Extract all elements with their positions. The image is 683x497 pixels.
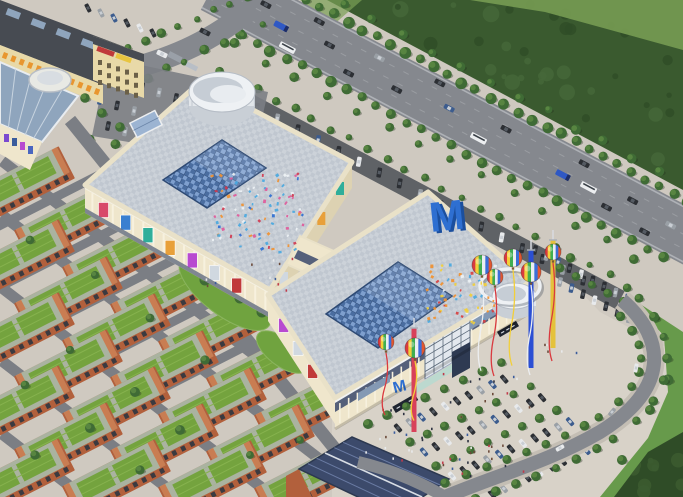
person (488, 445, 490, 447)
tree-highlight (429, 62, 435, 68)
confetti-piece (239, 190, 243, 192)
tree-highlight (26, 236, 31, 241)
tree-highlight (542, 441, 547, 446)
tree-highlight (499, 99, 505, 105)
person (467, 461, 469, 463)
person (492, 393, 494, 395)
person (461, 416, 463, 418)
tree-highlight (441, 422, 446, 427)
tree-highlight (532, 233, 536, 237)
person (443, 464, 445, 466)
tree-highlight (628, 236, 633, 241)
tree-highlight (630, 255, 635, 260)
tree-highlight (627, 168, 632, 173)
confetti-piece (449, 263, 452, 266)
tree-highlight (486, 94, 492, 100)
tree-highlight (572, 455, 577, 460)
tree-highlight (545, 106, 549, 110)
tree-highlight (86, 424, 91, 429)
tree-highlight (519, 423, 524, 428)
person (442, 462, 444, 464)
tree-highlight (386, 40, 392, 46)
tree-highlight (344, 18, 350, 24)
tree-highlight (655, 167, 660, 172)
person (408, 449, 410, 451)
confetti-piece (494, 265, 497, 268)
tree-highlight (470, 85, 475, 90)
tree-highlight (262, 60, 266, 64)
tree-highlight (429, 50, 434, 55)
tree-highlight (307, 115, 311, 119)
confetti-piece (451, 279, 454, 282)
person (277, 283, 279, 285)
confetti-piece (230, 177, 233, 179)
tree-highlight (572, 222, 577, 227)
tree-highlight (432, 462, 437, 467)
person (411, 450, 413, 452)
tree-highlight (514, 109, 520, 115)
tree-highlight (443, 70, 448, 75)
person (488, 450, 490, 452)
person (523, 470, 525, 472)
tree-highlight (457, 63, 462, 68)
tree-highlight (580, 422, 585, 427)
tree-highlight (556, 264, 561, 269)
person (422, 439, 424, 441)
person (576, 352, 578, 354)
confetti-piece (262, 174, 264, 177)
facade-poster (121, 215, 131, 230)
tree-highlight (511, 190, 515, 194)
tree-highlight (175, 24, 179, 28)
tree-highlight (163, 64, 168, 69)
person (470, 380, 472, 382)
tree-highlight (501, 431, 506, 436)
tree-highlight (587, 262, 590, 265)
person (392, 457, 394, 459)
person (206, 278, 208, 280)
confetti-piece (430, 265, 433, 269)
tree-highlight (483, 463, 488, 468)
tree-highlight (536, 414, 541, 419)
person (406, 434, 408, 436)
tree-highlight (415, 141, 419, 145)
confetti-piece (454, 283, 456, 286)
tree-highlight (146, 314, 151, 319)
confetti-piece (252, 203, 254, 205)
tree-highlight (635, 294, 640, 299)
tree-highlight (670, 190, 676, 196)
tree-highlight (553, 406, 558, 411)
tree-highlight (327, 127, 331, 131)
tree-highlight (593, 445, 598, 450)
facade-poster (187, 253, 197, 268)
person (450, 401, 452, 403)
tree-highlight (478, 158, 484, 164)
person (207, 285, 209, 287)
confetti-piece (258, 233, 260, 236)
tree-highlight (484, 439, 488, 443)
tree-highlight (201, 356, 206, 361)
confetti-piece (487, 296, 489, 299)
tree-highlight (650, 313, 655, 318)
tree-highlight (492, 166, 497, 171)
tree-highlight (341, 1, 346, 6)
person (473, 451, 475, 453)
tree-highlight (597, 221, 602, 226)
tree-highlight (660, 333, 664, 337)
tree-highlight (532, 472, 537, 477)
person (286, 289, 288, 291)
tree-highlight (487, 79, 492, 84)
roof-logo-m: M (427, 191, 467, 241)
tree-highlight (566, 254, 571, 259)
tree-highlight (290, 73, 295, 78)
confetti-piece (455, 298, 457, 300)
confetti-piece (477, 307, 479, 309)
tree-highlight (475, 407, 480, 412)
tree-highlight (539, 208, 543, 212)
person (507, 392, 509, 394)
tree-highlight (623, 284, 628, 289)
tree-highlight (401, 166, 405, 170)
tree-highlight (240, 32, 244, 36)
tree-highlight (386, 124, 391, 129)
balloon-basket (494, 286, 496, 288)
person (273, 259, 275, 261)
person (385, 447, 387, 449)
tree-highlight (142, 37, 147, 42)
tree-highlight (346, 135, 350, 139)
person (459, 458, 461, 460)
tree-highlight (588, 281, 592, 285)
person (215, 282, 217, 284)
tree-highlight (358, 93, 363, 98)
tree-highlight (374, 32, 379, 37)
tree-highlight (493, 399, 498, 404)
confetti-piece (287, 244, 289, 247)
balloon-basket (385, 351, 387, 353)
person (431, 428, 433, 430)
tree-highlight (372, 102, 377, 107)
person (452, 468, 454, 470)
tree-highlight (498, 359, 503, 364)
person (279, 263, 281, 265)
tree-highlight (649, 397, 654, 402)
person (484, 400, 486, 402)
confetti-piece (469, 275, 471, 278)
tree-highlight (660, 376, 665, 381)
tree-highlight (66, 346, 71, 351)
balloon-basket (481, 276, 483, 278)
person (561, 350, 563, 352)
tree-highlight (92, 272, 96, 276)
tree-highlight (515, 94, 520, 99)
tree-highlight (403, 120, 408, 125)
tree-highlight (417, 55, 422, 60)
tree-highlight (384, 156, 389, 161)
tree-highlight (478, 206, 482, 210)
tree-highlight (447, 156, 451, 160)
tree-highlight (582, 213, 588, 219)
tree-highlight (247, 452, 251, 456)
balloon-basket (414, 359, 416, 361)
tree-highlight (523, 181, 528, 186)
tree-highlight (503, 456, 508, 461)
tree-highlight (157, 29, 162, 34)
tree-highlight (571, 125, 577, 131)
tree-highlight (633, 417, 638, 422)
tree-highlight (221, 39, 226, 44)
tree-highlight (31, 451, 36, 456)
tree-highlight (81, 94, 86, 99)
tree-highlight (330, 9, 336, 15)
tree-highlight (254, 40, 259, 45)
tree-highlight (644, 246, 649, 251)
tree-highlight (265, 46, 271, 52)
tree-highlight (539, 188, 544, 193)
tree-highlight (418, 125, 423, 130)
tree-highlight (116, 123, 121, 128)
confetti-piece (212, 239, 214, 241)
tree-highlight (441, 385, 446, 390)
tree-highlight (628, 383, 633, 388)
aerial-rendering-stage: MMM (0, 0, 683, 497)
tree-highlight (283, 55, 289, 61)
tree-highlight (399, 30, 404, 35)
tree-highlight (552, 196, 558, 202)
tree-highlight (562, 432, 567, 437)
tree-highlight (312, 69, 318, 75)
tree-highlight (131, 388, 136, 393)
confetti-piece (471, 272, 474, 275)
person (493, 380, 495, 382)
confetti-piece (241, 203, 244, 206)
tree-highlight (136, 466, 141, 471)
person (403, 413, 405, 415)
tree-highlight (227, 2, 231, 6)
person (449, 458, 451, 460)
tree-highlight (557, 128, 563, 134)
tree-highlight (98, 109, 103, 114)
tree-highlight (616, 312, 621, 317)
tree-highlight (21, 381, 26, 386)
tree-highlight (510, 391, 514, 395)
tree-highlight (655, 182, 660, 187)
person (470, 452, 472, 454)
person (467, 440, 469, 442)
tree-highlight (438, 186, 442, 190)
confetti-piece (217, 234, 220, 237)
tree-highlight (568, 204, 574, 210)
tree-highlight (441, 479, 446, 484)
tree-highlight (543, 123, 549, 129)
person (491, 458, 493, 460)
confetti-piece (242, 207, 245, 209)
tree-highlight (604, 289, 609, 294)
tree-highlight (456, 78, 463, 85)
person (275, 278, 277, 280)
tree-highlight (618, 456, 624, 462)
person (467, 434, 469, 436)
tree-highlight (200, 45, 205, 50)
tree-highlight (612, 229, 618, 235)
tree-highlight (523, 448, 528, 453)
tree-highlight (460, 376, 465, 381)
confetti-piece (298, 213, 300, 216)
tree-highlight (423, 430, 428, 435)
tree-highlight (260, 22, 264, 26)
tree-highlight (195, 17, 199, 21)
person (269, 277, 271, 279)
facade-poster (143, 228, 153, 243)
confetti-piece (466, 310, 469, 313)
tree-highlight (422, 174, 426, 178)
confetti-piece (444, 299, 447, 302)
person (219, 265, 221, 267)
person (502, 445, 504, 447)
person (479, 378, 481, 380)
facade-poster (232, 278, 242, 293)
confetti-piece (272, 214, 275, 217)
tree-highlight (342, 85, 348, 91)
person (462, 473, 464, 475)
tree-highlight (432, 134, 437, 139)
person (365, 451, 367, 453)
tree-highlight (572, 137, 578, 143)
person (491, 446, 493, 448)
balloon-basket (552, 261, 554, 263)
tree-highlight (646, 406, 652, 412)
tree-highlight (599, 152, 604, 157)
tree-highlight (357, 26, 363, 32)
tree-highlight (299, 61, 304, 66)
tree-highlight (613, 160, 618, 165)
tree-highlight (585, 145, 590, 150)
tree-highlight (176, 426, 181, 431)
tree-highlight (181, 59, 185, 63)
person (547, 350, 549, 352)
tree-highlight (367, 15, 372, 20)
tree-highlight (527, 116, 533, 122)
tree-highlight (297, 437, 301, 441)
person (505, 465, 507, 467)
facade-poster (99, 203, 109, 218)
tree-highlight (387, 110, 393, 116)
facade-poster (165, 240, 175, 255)
tree-highlight (447, 141, 452, 146)
person (251, 263, 253, 265)
confetti-piece (292, 211, 295, 213)
confetti-piece (263, 199, 266, 203)
tree-highlight (595, 414, 600, 419)
person (385, 436, 387, 438)
tree-highlight (641, 176, 646, 181)
tree-highlight (364, 420, 370, 426)
tree-highlight (659, 253, 665, 259)
tree-highlight (513, 224, 517, 228)
tree-highlight (316, 3, 321, 8)
facade-poster (210, 266, 220, 281)
tree-highlight (492, 487, 497, 492)
tree-highlight (628, 327, 633, 332)
tree-highlight (230, 39, 235, 44)
person (470, 447, 472, 449)
tree-highlight (508, 175, 513, 180)
tree-highlight (400, 48, 407, 55)
tree-highlight (615, 398, 620, 403)
balloon-basket (530, 283, 532, 285)
tree-highlight (324, 92, 329, 97)
tree-highlight (292, 104, 297, 109)
tree-highlight (403, 403, 408, 408)
confetti-piece (286, 227, 289, 230)
confetti-piece (483, 283, 487, 287)
confetti-piece (278, 251, 282, 254)
tree-highlight (406, 438, 411, 443)
tree-highlight (638, 355, 643, 360)
tree-highlight (211, 6, 215, 10)
person (394, 431, 396, 433)
tree-highlight (462, 151, 467, 156)
tree-highlight (364, 145, 369, 150)
tree-highlight (599, 136, 604, 141)
person (544, 344, 546, 346)
person (379, 438, 381, 440)
confetti-piece (445, 304, 447, 307)
tree-highlight (609, 435, 614, 440)
tree-highlight (353, 109, 357, 113)
person (516, 378, 518, 380)
tree-highlight (527, 383, 531, 387)
confetti-piece (302, 223, 305, 226)
balloon-basket (512, 268, 514, 270)
person (470, 475, 472, 477)
person (292, 258, 294, 260)
tree-highlight (512, 480, 517, 485)
tree-highlight (572, 273, 577, 278)
mall-aerial-scene: MMM (0, 0, 683, 497)
tree-highlight (326, 77, 332, 83)
tree-highlight (496, 213, 501, 218)
tree-highlight (111, 140, 116, 145)
person (390, 409, 392, 411)
tree-highlight (607, 271, 611, 275)
tree-highlight (604, 236, 608, 240)
person (443, 373, 445, 375)
tree-highlight (273, 98, 278, 103)
confetti-piece (218, 225, 221, 228)
person (546, 344, 548, 346)
tree-highlight (635, 341, 640, 346)
person (401, 459, 403, 461)
person (513, 376, 515, 378)
tree-highlight (627, 154, 632, 159)
tree-highlight (478, 172, 482, 176)
b1-rotunda (189, 72, 255, 126)
roof-logo: MM (427, 191, 470, 243)
confetti-piece (472, 283, 475, 286)
person (529, 406, 531, 408)
tree-highlight (421, 394, 426, 399)
tree-highlight (553, 465, 557, 469)
tree-highlight (663, 354, 668, 359)
